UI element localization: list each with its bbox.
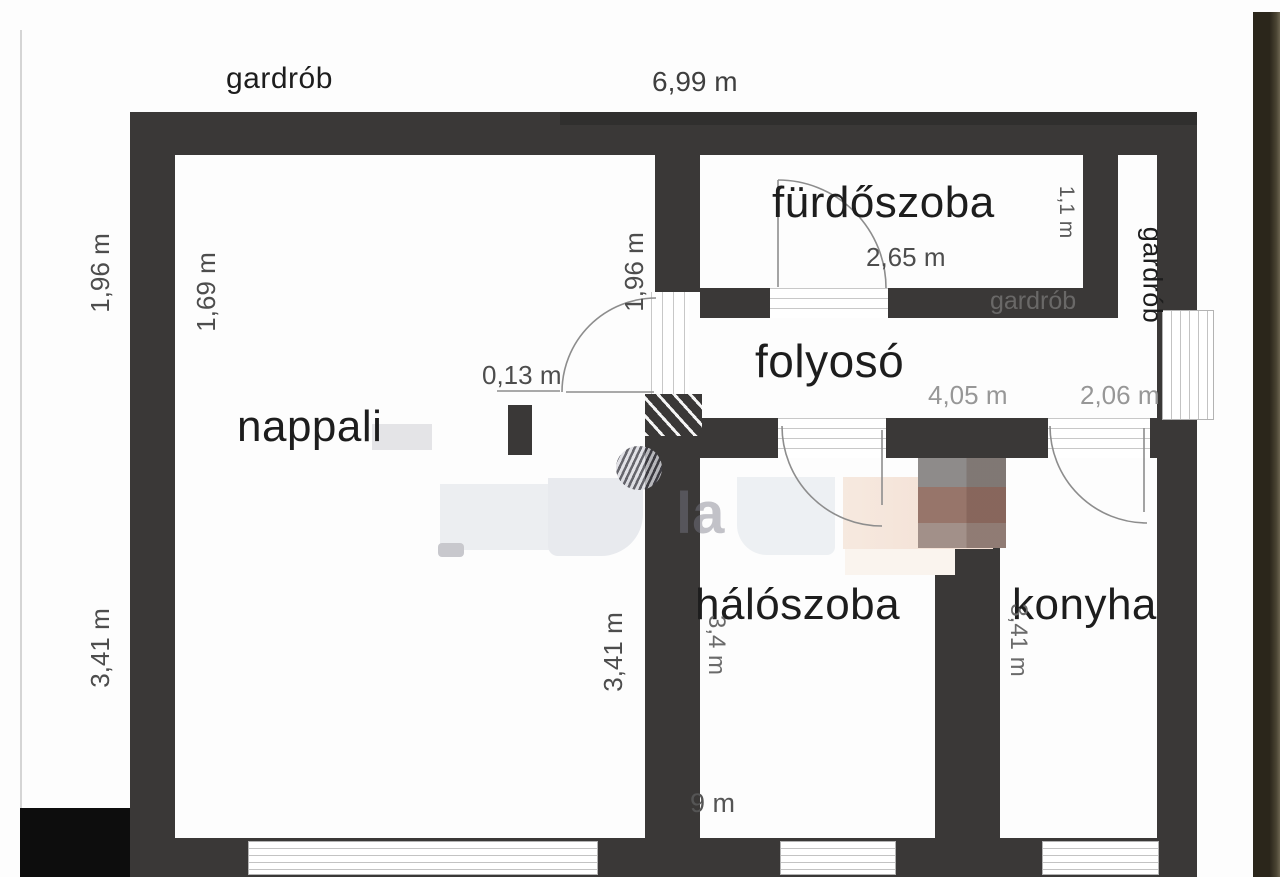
floorplan-canvas: la gardrób nappali fürdőszoba folyosó há… xyxy=(0,0,1280,877)
dim-folyoso-width: 4,05 m xyxy=(928,380,1008,411)
dim-furdoszoba-width: 2,65 m xyxy=(866,242,946,273)
dim-haloszoba-bottom: 9 m xyxy=(690,788,735,819)
dim-haloszoba-depth: 3,4 m xyxy=(703,600,729,690)
dim-outer-left-lower: 3,41 m xyxy=(86,598,114,698)
dim-pillar: 0,13 m xyxy=(482,360,562,391)
room-label-gardrob-top: gardrób xyxy=(226,62,333,96)
dim-furdoszoba-depth: 1,1 m xyxy=(1054,167,1078,257)
room-label-folyoso: folyosó xyxy=(755,334,904,388)
room-label-furdoszoba: fürdőszoba xyxy=(772,178,995,228)
dim-outer-left-upper: 1,96 m xyxy=(86,223,114,323)
dim-konyha-depth: 3,41 m xyxy=(1005,592,1031,688)
room-label-gardrob-right: gardrób xyxy=(1138,183,1168,368)
room-label-konyha: konyha xyxy=(1012,580,1157,630)
dim-nappali-door: 1,96 m xyxy=(620,222,648,322)
dim-nappali-right: 3,41 m xyxy=(599,602,627,702)
dim-nappali-left: 1,69 m xyxy=(192,242,220,342)
dim-folyoso-right-width: 2,06 m xyxy=(1080,380,1160,411)
dim-top-width: 6,99 m xyxy=(652,66,738,98)
room-label-nappali: nappali xyxy=(237,402,382,452)
door-swing-arcs xyxy=(0,0,1280,877)
